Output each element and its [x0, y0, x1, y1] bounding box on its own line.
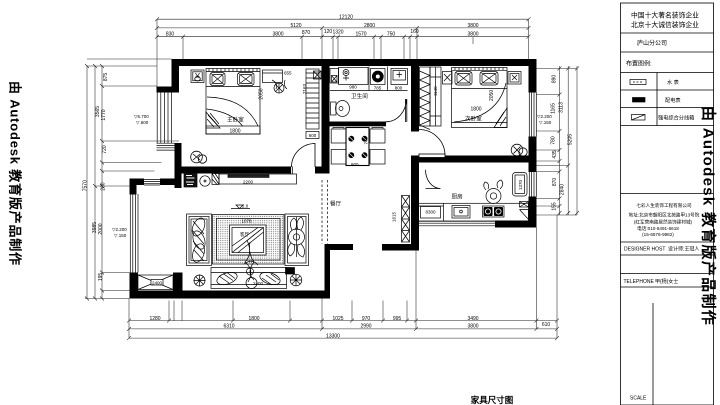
- svg-text:800: 800: [351, 162, 359, 167]
- svg-text:1800: 1800: [470, 107, 481, 113]
- svg-text:155: 155: [552, 202, 558, 211]
- svg-text:▽.150: ▽.150: [114, 233, 127, 238]
- svg-text:3800: 3800: [467, 23, 478, 29]
- svg-text:5205: 5205: [568, 134, 574, 145]
- svg-text:1370: 1370: [518, 179, 523, 190]
- svg-text:厨房: 厨房: [452, 193, 464, 201]
- svg-text:(15-6576-9982): (15-6576-9982): [642, 232, 674, 237]
- svg-text:1800: 1800: [248, 316, 259, 322]
- svg-text:2050: 2050: [259, 88, 265, 99]
- svg-text:1320: 1320: [332, 30, 343, 36]
- svg-text:3490: 3490: [467, 316, 478, 322]
- svg-text:600: 600: [309, 133, 317, 138]
- svg-text:980: 980: [349, 85, 357, 90]
- svg-text:160: 160: [410, 29, 419, 35]
- svg-text:由 Autodesk 教育版产品制作: 由 Autodesk 教育版产品制作: [8, 81, 23, 266]
- svg-text:875: 875: [103, 73, 109, 82]
- svg-text:1165: 1165: [551, 103, 557, 114]
- svg-text:DESIGNER HOST: DESIGNER HOST: [624, 247, 665, 253]
- svg-text:655: 655: [284, 71, 292, 76]
- svg-text:785: 785: [374, 86, 382, 91]
- svg-text:200: 200: [101, 182, 107, 191]
- svg-text:800: 800: [395, 86, 403, 91]
- svg-text:970: 970: [362, 316, 371, 322]
- svg-text:995: 995: [393, 316, 402, 322]
- svg-text:3800: 3800: [467, 31, 478, 37]
- svg-text:北京十大诚信装饰企业: 北京十大诚信装饰企业: [631, 20, 699, 29]
- svg-text:家具尺寸图: 家具尺寸图: [471, 395, 514, 405]
- svg-text:水 表: 水 表: [667, 78, 680, 86]
- svg-text:1570: 1570: [355, 31, 366, 37]
- svg-text:750: 750: [387, 31, 396, 37]
- svg-text:七彩人生装饰工程有限公司: 七彩人生装饰工程有限公司: [636, 202, 692, 209]
- svg-text:2990: 2990: [360, 324, 371, 330]
- svg-text:强电综合分线箱: 强电综合分线箱: [658, 114, 694, 122]
- svg-text:890: 890: [552, 75, 558, 84]
- svg-text:由 Autodesk 教育版产品制作: 由 Autodesk 教育版产品制作: [700, 106, 718, 326]
- svg-text:1078: 1078: [241, 219, 252, 224]
- svg-text:庐山分公司: 庐山分公司: [637, 39, 667, 47]
- svg-text:2.0: 2.0: [242, 204, 249, 209]
- svg-text:3113: 3113: [559, 102, 565, 113]
- svg-text:2840: 2840: [559, 184, 565, 195]
- svg-text:TELEPHONE: TELEPHONE: [624, 279, 655, 285]
- svg-text:客厅: 客厅: [240, 231, 249, 238]
- svg-text:870: 870: [302, 30, 311, 36]
- svg-text:13300: 13300: [326, 333, 340, 339]
- svg-text:布置图例:: 布置图例:: [626, 60, 652, 68]
- svg-text:SCALE: SCALE: [630, 396, 647, 402]
- svg-text:(红军营南路居然装饰建材城): (红军营南路居然装饰建材城): [634, 219, 693, 226]
- svg-text:7570: 7570: [82, 180, 88, 191]
- svg-text:电话:010-8491-6618: 电话:010-8491-6618: [637, 225, 679, 232]
- svg-text:▽6.700: ▽6.700: [134, 114, 149, 119]
- svg-text:12120: 12120: [339, 14, 353, 20]
- svg-text:2400: 2400: [152, 280, 163, 285]
- svg-text:2050: 2050: [489, 90, 495, 101]
- svg-text:1025: 1025: [332, 316, 343, 322]
- svg-text:2800: 2800: [364, 23, 375, 29]
- svg-text:中国十大著名装饰企业: 中国十大著名装饰企业: [631, 11, 699, 20]
- svg-text:1800: 1800: [229, 128, 240, 134]
- svg-text:780: 780: [551, 136, 557, 145]
- svg-text:设计师:王冠人: 设计师:王冠人: [668, 246, 699, 253]
- svg-text:830: 830: [166, 31, 175, 37]
- svg-text:▽.150: ▽.150: [539, 120, 552, 125]
- svg-text:610: 610: [542, 322, 551, 328]
- svg-text:195: 195: [98, 273, 104, 282]
- svg-text:1140: 1140: [433, 86, 438, 96]
- svg-text:745: 745: [364, 136, 369, 144]
- svg-text:甲(杨)女士: 甲(杨)女士: [655, 278, 678, 285]
- svg-text:720: 720: [102, 145, 108, 154]
- svg-text:6310: 6310: [223, 324, 234, 330]
- svg-text:1770: 1770: [101, 109, 107, 120]
- svg-text:次卧室: 次卧室: [465, 115, 482, 123]
- svg-text:▽.600: ▽.600: [136, 120, 149, 125]
- svg-text:▽2.200: ▽2.200: [537, 114, 552, 119]
- svg-text:2163: 2163: [302, 83, 307, 94]
- svg-text:870: 870: [552, 178, 558, 187]
- svg-text:配电表: 配电表: [665, 96, 681, 104]
- svg-text:2200: 2200: [243, 179, 254, 184]
- svg-text:120: 120: [324, 29, 333, 35]
- svg-text:地址:北京市朝阳区北苑路甲13号院: 地址:北京市朝阳区北苑路甲13号院: [629, 212, 700, 219]
- svg-text:▽2.200: ▽2.200: [112, 227, 127, 232]
- svg-text:1615: 1615: [392, 211, 397, 222]
- svg-text:主卧室: 主卧室: [227, 116, 244, 124]
- svg-text:卫生间: 卫生间: [351, 92, 368, 100]
- svg-text:餐厅: 餐厅: [330, 200, 342, 208]
- svg-text:5120: 5120: [290, 23, 301, 29]
- svg-text:2000: 2000: [98, 223, 104, 234]
- svg-text:2400: 2400: [253, 281, 264, 286]
- svg-text:3800: 3800: [467, 324, 478, 330]
- svg-text:1280: 1280: [149, 316, 160, 322]
- svg-text:8300: 8300: [425, 210, 436, 215]
- svg-text:3800: 3800: [272, 31, 283, 37]
- svg-text:435: 435: [552, 150, 558, 159]
